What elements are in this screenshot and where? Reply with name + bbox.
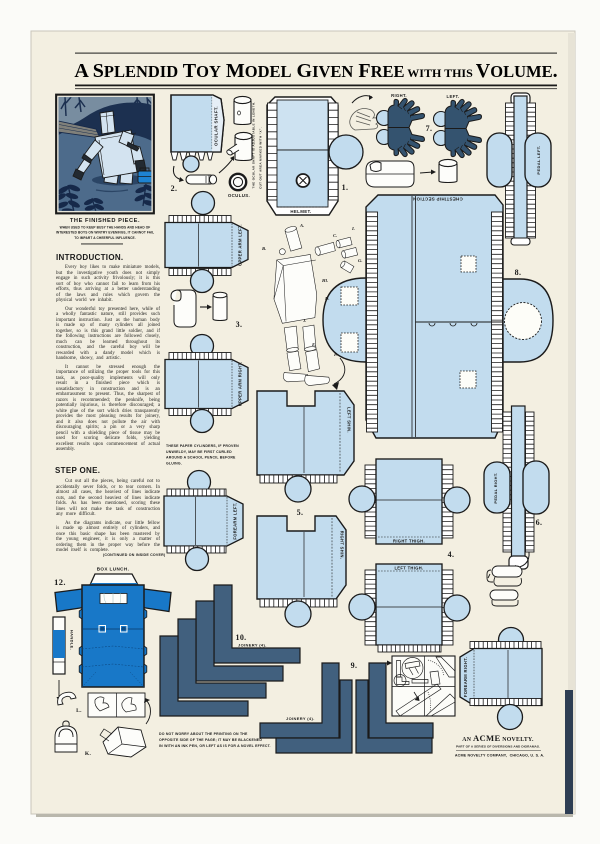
svg-text:BOX LUNCH.: BOX LUNCH. <box>97 567 130 572</box>
svg-text:C.: C. <box>333 233 337 238</box>
svg-text:D.: D. <box>324 296 329 301</box>
svg-text:THE FINISHED PIECE.: THE FINISHED PIECE. <box>70 218 140 224</box>
svg-text:F.: F. <box>334 352 338 357</box>
svg-text:Hl.: Hl. <box>321 278 328 283</box>
svg-text:JOINERY (4).: JOINERY (4). <box>238 643 267 648</box>
svg-text:12.: 12. <box>54 577 66 587</box>
svg-text:I.: I. <box>351 226 355 231</box>
svg-text:5.: 5. <box>297 508 304 517</box>
svg-text:UPPER ARM LEFT.: UPPER ARM LEFT. <box>238 224 243 266</box>
svg-text:LEFT.: LEFT. <box>447 94 460 99</box>
svg-text:K.: K. <box>85 751 92 757</box>
svg-text:3.: 3. <box>236 320 243 329</box>
svg-text:HELMET.: HELMET. <box>290 209 311 214</box>
svg-text:G.: G. <box>358 258 362 263</box>
svg-text:PEDAL LEFT.: PEDAL LEFT. <box>536 145 541 174</box>
svg-text:1.: 1. <box>342 183 349 192</box>
svg-text:RIGHT.: RIGHT. <box>391 93 407 98</box>
svg-text:RIGHT THIGH.: RIGHT THIGH. <box>393 539 425 544</box>
svg-text:INTRODUCTION.: INTRODUCTION. <box>56 253 123 262</box>
svg-text:LEFT SHIN.: LEFT SHIN. <box>347 407 352 433</box>
svg-text:CHICAGO, U. S. A.: CHICAGO, U. S. A. <box>510 754 545 758</box>
svg-text:HANDLE.: HANDLE. <box>70 630 75 650</box>
svg-text:AROUND A SCHOOL PENCIL BEFORE: AROUND A SCHOOL PENCIL BEFORE <box>166 456 236 460</box>
svg-text:INTERESTED BOYS ON WINTRY EVEN: INTERESTED BOYS ON WINTRY EVENINGS, IT C… <box>56 231 154 235</box>
svg-text:A.: A. <box>299 223 304 228</box>
svg-text:UPPER ARM RIGHT.: UPPER ARM RIGHT. <box>238 362 243 407</box>
svg-text:J.: J. <box>302 318 306 323</box>
svg-text:CUT OUT AREA MARKED WITH “X”.: CUT OUT AREA MARKED WITH “X”. <box>259 127 263 189</box>
svg-text:OCULAR SHAFT.: OCULAR SHAFT. <box>214 106 219 146</box>
svg-text:JOINERY (4).: JOINERY (4). <box>286 716 315 721</box>
svg-text:PEDAL RIGHT.: PEDAL RIGHT. <box>493 472 498 503</box>
svg-text:LEFT THIGH.: LEFT THIGH. <box>394 566 423 571</box>
svg-text:STEP ONE.: STEP ONE. <box>55 466 100 475</box>
svg-text:IN WITH AN INK PEN, OR LEFT AS: IN WITH AN INK PEN, OR LEFT AS IS FOR A … <box>159 744 271 748</box>
svg-text:THE OCULAR SHAFT IS ADJUSTABLE: THE OCULAR SHAFT IS ADJUSTABLE IN LENGTH… <box>252 101 256 188</box>
svg-text:ACME NOVELTY COMPANY,: ACME NOVELTY COMPANY, <box>455 754 507 758</box>
svg-text:7.: 7. <box>426 124 433 133</box>
svg-text:A SPLENDID TOY MODEL GIVEN FRE: A SPLENDID TOY MODEL GIVEN FREE WITH THI… <box>74 60 557 82</box>
svg-text:TO IMPART A CHEERFUL INFLUENCE: TO IMPART A CHEERFUL INFLUENCE. <box>74 236 135 240</box>
svg-text:OPPOSITE SIDE OF THE PAGE; IT: OPPOSITE SIDE OF THE PAGE; IT MAY BE BLA… <box>159 738 262 742</box>
svg-text:L.: L. <box>76 708 82 714</box>
svg-text:6.: 6. <box>536 518 543 527</box>
svg-text:GLUING.: GLUING. <box>166 461 182 465</box>
svg-text:WHEN USED TO KEEP BUSY THE HAN: WHEN USED TO KEEP BUSY THE HANDS AND HEA… <box>60 226 151 230</box>
svg-text:10.: 10. <box>235 633 246 642</box>
svg-text:UNWIELDY, MAY BE FIRST CURLED: UNWIELDY, MAY BE FIRST CURLED <box>166 450 232 454</box>
svg-text:FOREARM LEFT.: FOREARM LEFT. <box>233 502 238 539</box>
svg-text:CHEST/HIP SECTION.: CHEST/HIP SECTION. <box>411 197 463 202</box>
svg-text:2.: 2. <box>171 184 178 193</box>
svg-text:8.: 8. <box>515 268 522 277</box>
svg-text:9.: 9. <box>351 661 358 670</box>
svg-text:DO NOT WORRY ABOUT THE PRINTIN: DO NOT WORRY ABOUT THE PRINTING ON THE <box>159 732 248 736</box>
svg-text:RIGHT SHIN.: RIGHT SHIN. <box>340 531 345 560</box>
svg-text:E.: E. <box>311 342 316 347</box>
svg-text:THESE PAPER CYLINDERS, IF PROV: THESE PAPER CYLINDERS, IF PROVEN <box>166 444 239 448</box>
svg-text:4.: 4. <box>448 550 455 559</box>
svg-text:OCULUS.: OCULUS. <box>228 193 250 198</box>
svg-text:PART OF A SERIES OF DIVERSIONS: PART OF A SERIES OF DIVERSIONS AND DIORA… <box>456 745 540 749</box>
svg-text:FOREARM RIGHT.: FOREARM RIGHT. <box>463 657 468 697</box>
svg-text:B.: B. <box>261 246 266 251</box>
